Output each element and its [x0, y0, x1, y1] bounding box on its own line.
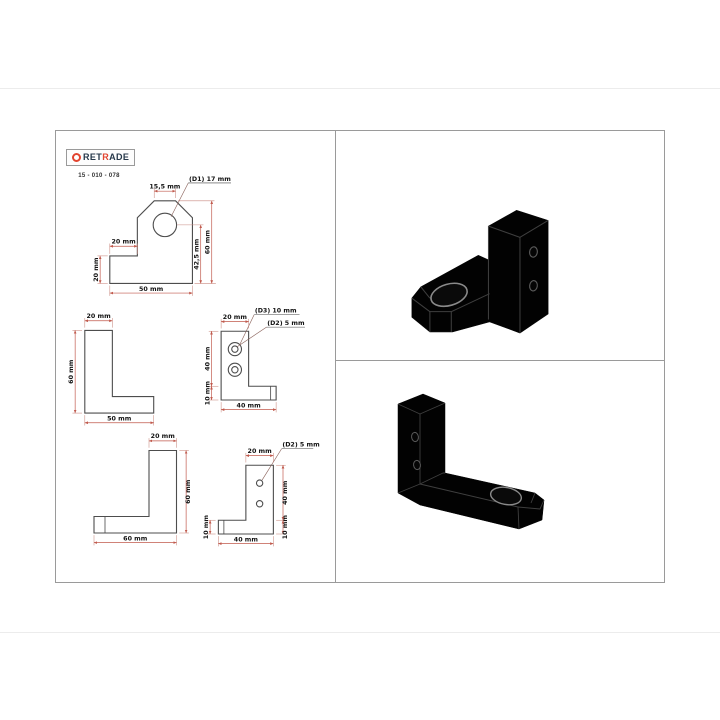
holes-left-dimensions: (D3) 10 mm (D2) 5 mm 20 mm 40 mm 10 mm	[204, 308, 305, 413]
holes-right-dimensions: (D2) 5 mm 20 mm 40 mm 10 mm 10 mm	[203, 442, 320, 547]
screenshot-page: RETRADE 15 - 010 - 078 15,5 mm (D1) 17 m…	[0, 0, 720, 720]
svg-text:50 mm: 50 mm	[107, 416, 132, 423]
isometric-render-front	[388, 389, 568, 549]
profile-view-left: 20 mm 60 mm 50 mm	[60, 311, 173, 438]
drawing-sheet: RETRADE 15 - 010 - 078 15,5 mm (D1) 17 m…	[55, 130, 665, 583]
svg-text:60 mm: 60 mm	[68, 359, 75, 384]
drawing-pane: RETRADE 15 - 010 - 078 15,5 mm (D1) 17 m…	[56, 131, 336, 582]
svg-text:40 mm: 40 mm	[204, 346, 211, 371]
retrade-logo-icon	[72, 153, 81, 162]
photo-top-edge	[0, 88, 720, 89]
profile-right-dimensions: 20 mm 60 mm 60 mm	[94, 433, 192, 545]
svg-text:40 mm: 40 mm	[282, 480, 289, 505]
retrade-logo: RETRADE	[66, 149, 135, 166]
svg-text:20 mm: 20 mm	[86, 313, 111, 320]
profile-view-right: 20 mm 60 mm 60 mm	[72, 431, 204, 558]
brand-wordmark: RETRADE	[83, 153, 129, 162]
profile-right-outline	[94, 451, 177, 534]
svg-text:20 mm: 20 mm	[93, 257, 100, 282]
svg-text:15,5 mm: 15,5 mm	[149, 183, 180, 190]
svg-text:10 mm: 10 mm	[204, 381, 211, 406]
profile-left-outline	[85, 330, 154, 413]
svg-text:(D3) 10 mm: (D3) 10 mm	[255, 308, 297, 315]
svg-text:40 mm: 40 mm	[237, 403, 262, 410]
svg-text:20 mm: 20 mm	[111, 239, 136, 246]
svg-text:20 mm: 20 mm	[248, 448, 273, 455]
holes-view-left: (D3) 10 mm (D2) 5 mm 20 mm 40 mm 10 mm	[196, 301, 315, 422]
holes-view-right: (D2) 5 mm 20 mm 40 mm 10 mm 10 mm	[196, 435, 315, 556]
svg-text:20 mm: 20 mm	[223, 314, 248, 321]
svg-text:10 mm: 10 mm	[203, 515, 210, 540]
front-view-hole	[153, 213, 176, 236]
svg-text:60 mm: 60 mm	[205, 230, 212, 255]
render-panel-bottom	[336, 361, 665, 582]
svg-text:50 mm: 50 mm	[139, 286, 164, 293]
isometric-render-rear	[404, 181, 556, 332]
render-panel-top	[336, 131, 665, 361]
svg-text:40 mm: 40 mm	[234, 537, 259, 544]
svg-text:20 mm: 20 mm	[151, 433, 176, 440]
svg-text:(D2) 5 mm: (D2) 5 mm	[267, 320, 305, 327]
svg-text:10 mm: 10 mm	[282, 515, 289, 540]
front-view: 15,5 mm (D1) 17 mm 20 mm 20 mm 50 m	[74, 173, 231, 314]
svg-text:60 mm: 60 mm	[185, 479, 192, 504]
photo-bottom-edge	[0, 632, 720, 633]
svg-text:(D1) 17 mm: (D1) 17 mm	[189, 176, 231, 183]
svg-text:42,5 mm: 42,5 mm	[193, 238, 200, 269]
svg-text:60 mm: 60 mm	[123, 536, 148, 543]
holes-left-outline	[221, 331, 276, 400]
bracket-silhouette-rear	[412, 210, 548, 333]
svg-text:(D2) 5 mm: (D2) 5 mm	[282, 442, 320, 449]
